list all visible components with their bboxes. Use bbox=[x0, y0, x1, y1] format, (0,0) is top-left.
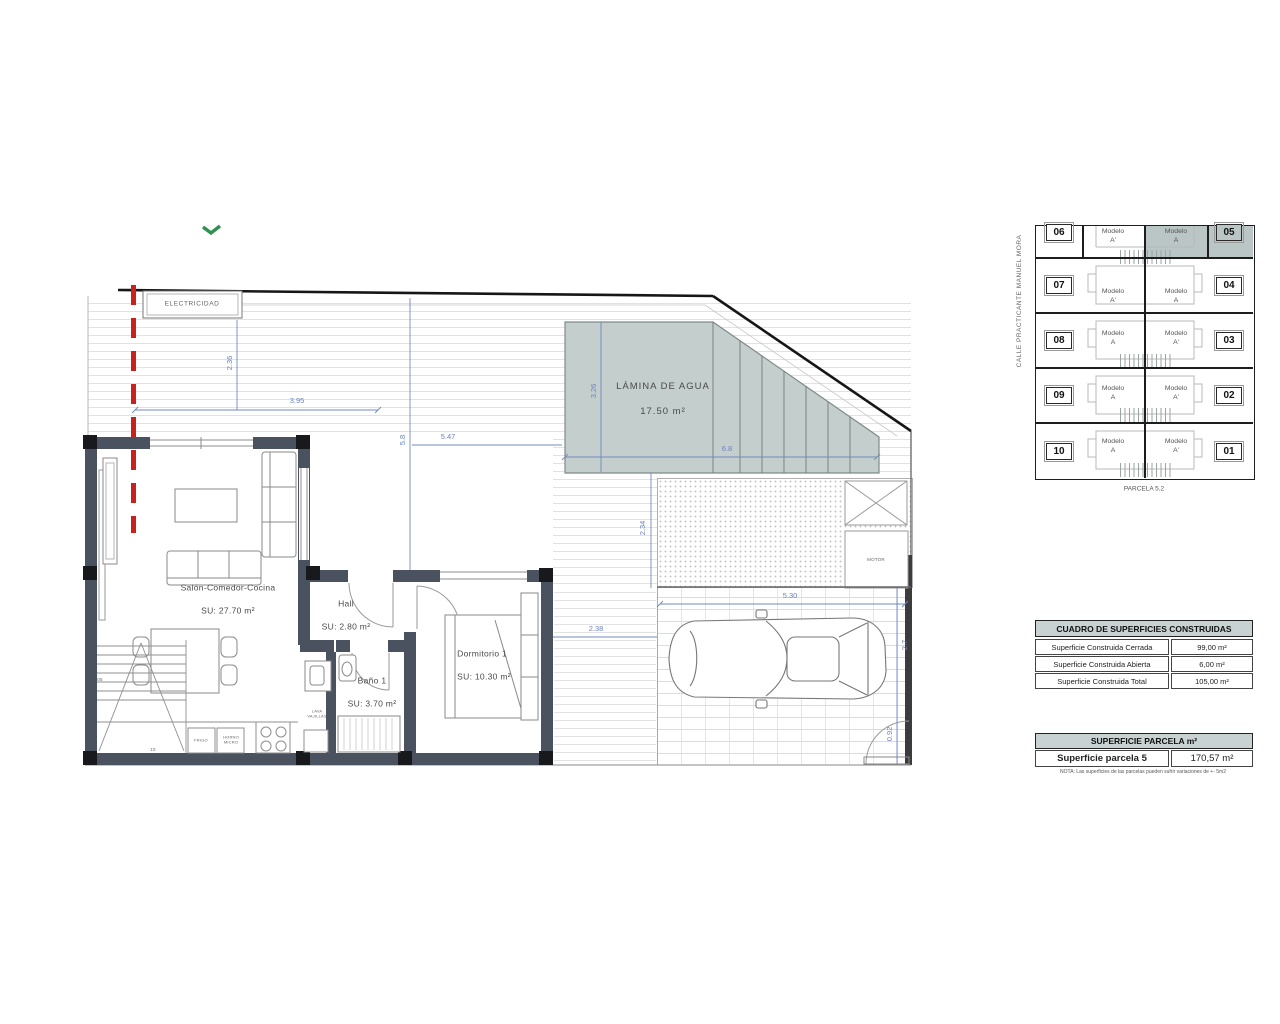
parcel-table-title: SUPERFICIE PARCELA m² bbox=[1035, 733, 1253, 749]
grid-center-divider bbox=[1144, 225, 1146, 478]
salon-area: SU: 27.70 m² bbox=[181, 606, 276, 617]
surfaces-row-label: Superficie Construida Cerrada bbox=[1035, 639, 1169, 655]
parcel-table-note: NOTA: Las superficies de las parcelas pu… bbox=[1035, 769, 1251, 775]
surfaces-row-value: 6,00 m² bbox=[1171, 656, 1253, 672]
model-label: Modelo A bbox=[1085, 384, 1141, 402]
bano-label: Baño 1 SU: 3.70 m² bbox=[348, 664, 397, 721]
parcel-number-10: 10 bbox=[1046, 443, 1072, 460]
salon-name: Salón-Comedor-Cocina bbox=[181, 583, 276, 594]
model-label: Modelo A' bbox=[1085, 227, 1141, 245]
model-label: Modelo A' bbox=[1148, 329, 1204, 347]
horno-label: HORNO MICRO bbox=[223, 735, 239, 746]
driveway-brick-area bbox=[657, 588, 912, 765]
surfaces-row-value: 99,00 m² bbox=[1171, 639, 1253, 655]
hall-name: Hall bbox=[322, 599, 371, 610]
surfaces-table-title: CUADRO DE SUPERFICIES CONSTRUIDAS bbox=[1035, 620, 1253, 637]
parcel-number-03: 03 bbox=[1216, 332, 1242, 349]
plan-sheet: ELECTRICIDAD Salón-Comedor-Cocina SU: 27… bbox=[0, 0, 1280, 1024]
stairs bbox=[97, 640, 186, 753]
dim-2-34: 2.34 bbox=[638, 521, 648, 536]
model-label: Modelo A' bbox=[1085, 287, 1141, 305]
frigo-label: FRIGO bbox=[194, 737, 208, 742]
parcel-row-label: Superficie parcela 5 bbox=[1035, 750, 1169, 767]
dim-2-36: 2.36 bbox=[225, 356, 235, 371]
parcel-number-07: 07 bbox=[1046, 277, 1072, 294]
parcel-number-04: 04 bbox=[1216, 277, 1242, 294]
grid-top-divider-right bbox=[1207, 225, 1209, 257]
parcel-number-01: 01 bbox=[1216, 443, 1242, 460]
hall-area: SU: 2.80 m² bbox=[322, 622, 371, 633]
dim-5-30: 5.30 bbox=[783, 591, 798, 601]
dim-5-47: 5.47 bbox=[441, 432, 456, 442]
terrace-hatch-area bbox=[657, 478, 913, 588]
parcel-number-06: 06 bbox=[1046, 224, 1072, 241]
pool-name: LÁMINA DE AGUA bbox=[616, 381, 710, 394]
lava-label: LAVA VAJILLAS bbox=[307, 709, 327, 720]
model-label: Modelo A' bbox=[1148, 437, 1204, 455]
model-label: Modelo A' bbox=[1148, 384, 1204, 402]
surfaces-row-label: Superficie Construida Abierta bbox=[1035, 656, 1169, 672]
model-label: Modelo A bbox=[1085, 329, 1141, 347]
kitchen-counter bbox=[97, 722, 328, 753]
parcel-number-09: 09 bbox=[1046, 387, 1072, 404]
model-label: Modelo A bbox=[1085, 437, 1141, 455]
stair-step-05: 05 bbox=[97, 677, 102, 683]
deck-paving-side bbox=[554, 585, 656, 765]
stair-step-10: 10 bbox=[150, 747, 155, 753]
hall-label: Hall SU: 2.80 m² bbox=[322, 587, 371, 644]
dim-5-8: 5.8 bbox=[398, 435, 408, 445]
dim-3-95: 3.95 bbox=[290, 396, 305, 406]
green-check-mark bbox=[203, 226, 220, 233]
model-label: Modelo A bbox=[1148, 287, 1204, 305]
dormitorio-label: Dormitorio 1 SU: 10.30 m² bbox=[457, 637, 511, 694]
grid-top-divider-left bbox=[1082, 225, 1084, 257]
driveway-hatch bbox=[1120, 463, 1172, 477]
street-label: CALLE PRACTICANTE MANUEL MORA bbox=[1016, 221, 1028, 381]
parcel-number-05: 05 bbox=[1216, 224, 1242, 241]
bano-area: SU: 3.70 m² bbox=[348, 699, 397, 710]
dim-2-38: 2.38 bbox=[589, 624, 604, 634]
parcela-caption: PARCELA 5.2 bbox=[1124, 486, 1164, 495]
surfaces-row-label: Superficie Construida Total bbox=[1035, 673, 1169, 689]
dim-3-26: 3.26 bbox=[589, 384, 599, 399]
surfaces-row-value: 105,00 m² bbox=[1171, 673, 1253, 689]
electricidad-label: ELECTRICIDAD bbox=[165, 301, 220, 310]
parcel-number-02: 02 bbox=[1216, 387, 1242, 404]
driveway-hatch bbox=[1120, 354, 1172, 367]
parcel-number-08: 08 bbox=[1046, 332, 1072, 349]
dormitorio-name: Dormitorio 1 bbox=[457, 649, 511, 660]
pool-area: 17.50 m² bbox=[616, 406, 710, 419]
dining-set bbox=[133, 629, 237, 693]
model-label: Modelo A bbox=[1148, 227, 1204, 245]
dim-6-8: 6.8 bbox=[722, 444, 732, 454]
motor-label: MOTOR bbox=[867, 557, 885, 563]
driveway-hatch bbox=[1120, 408, 1172, 422]
dim-2-7: 2.7 bbox=[900, 640, 910, 650]
pool-label: LÁMINA DE AGUA 17.50 m² bbox=[616, 368, 710, 432]
bano-name: Baño 1 bbox=[348, 676, 397, 687]
salon-label: Salón-Comedor-Cocina SU: 27.70 m² bbox=[181, 571, 276, 628]
dim-0-92: 0.92 bbox=[885, 727, 895, 742]
dormitorio-area: SU: 10.30 m² bbox=[457, 672, 511, 683]
parcel-row-value: 170,57 m² bbox=[1171, 750, 1253, 767]
boundary-red-dashed-line bbox=[131, 285, 136, 533]
